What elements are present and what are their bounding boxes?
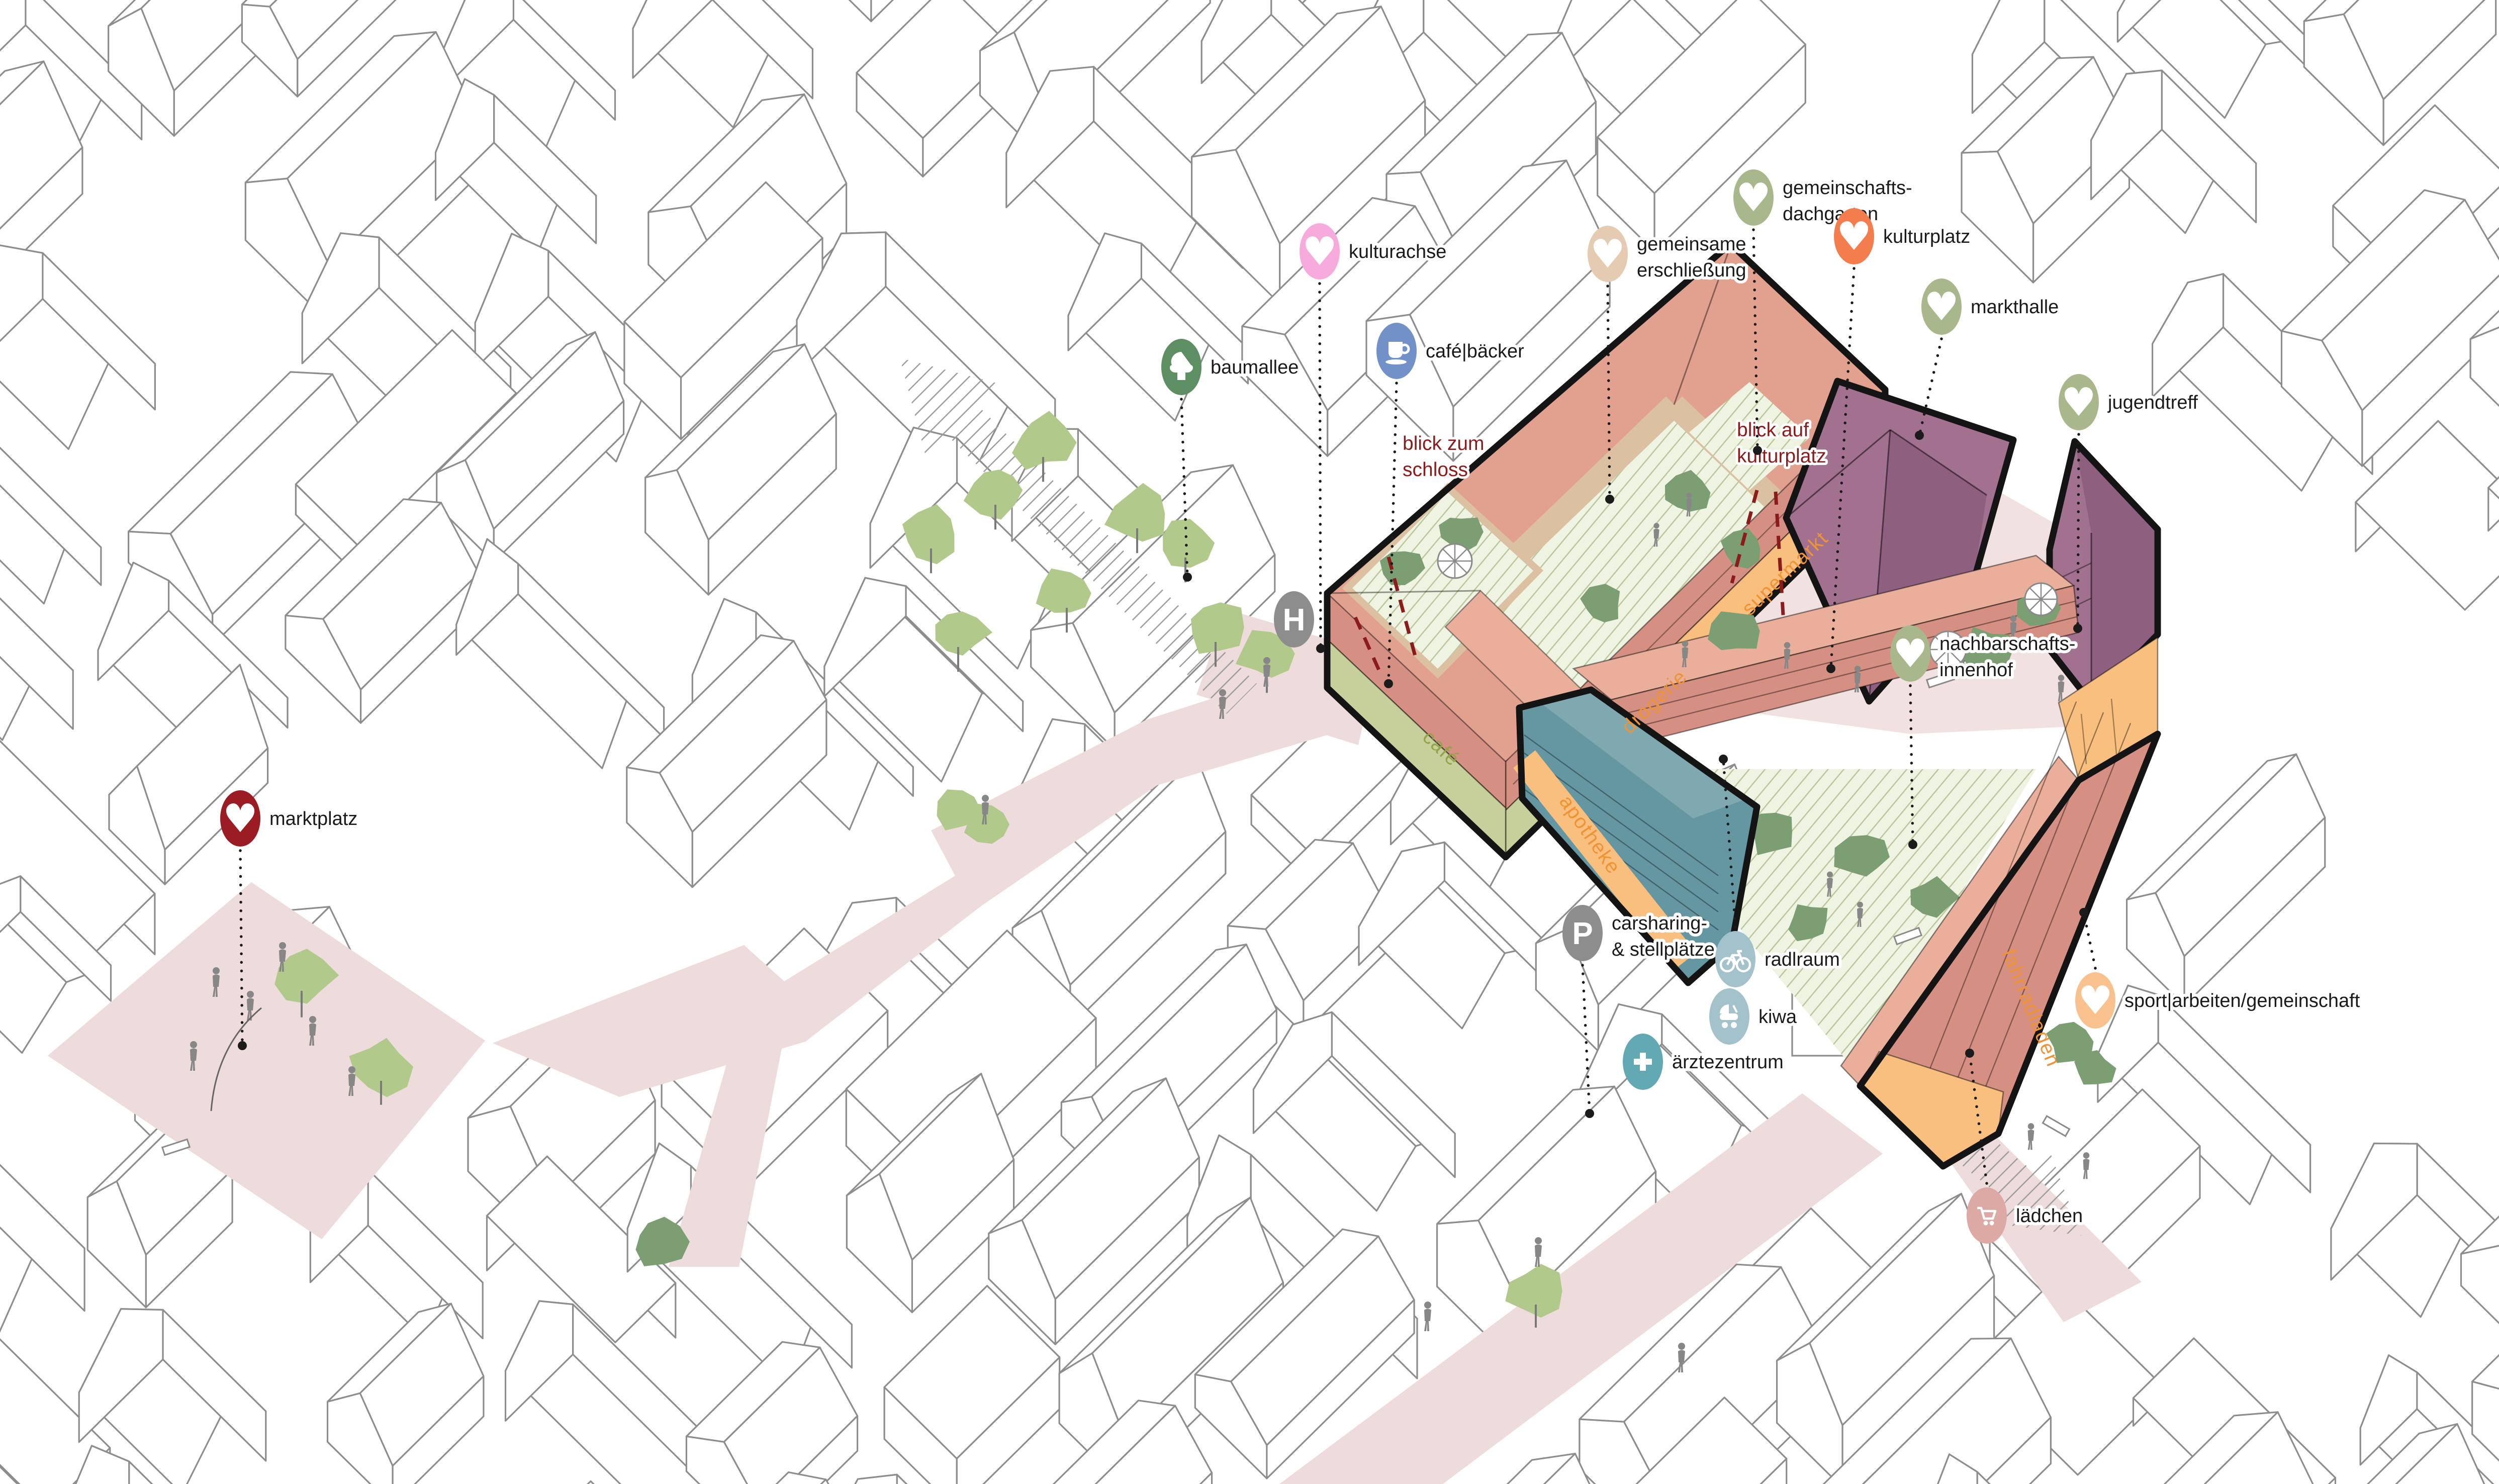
svg-text:♥: ♥ bbox=[1893, 631, 1928, 677]
label-text: gemeinsame bbox=[1637, 234, 1746, 255]
heart-icon-glyph: ♥ bbox=[1924, 285, 1959, 330]
label-text: kulturplatz bbox=[1883, 226, 1970, 247]
heart-icon-glyph: ♥ bbox=[2061, 380, 2096, 425]
bike-icon bbox=[1715, 931, 1755, 987]
label-text: nachbarschafts- bbox=[1939, 633, 2075, 655]
cup-icon-glyph bbox=[1385, 342, 1409, 364]
label-text: baumallee bbox=[1211, 357, 1299, 378]
label-text: ärztezentrum bbox=[1672, 1052, 1784, 1073]
label-text: kulturachse bbox=[1349, 241, 1446, 262]
svg-text:kulturplatz: kulturplatz bbox=[1737, 445, 1826, 467]
heart-icon-glyph: ♥ bbox=[1302, 229, 1337, 274]
leader-dot bbox=[1316, 644, 1325, 653]
heart-icon-glyph: ♥ bbox=[1590, 232, 1625, 277]
leader-dot bbox=[1384, 679, 1393, 688]
svg-text:♥: ♥ bbox=[1836, 214, 1872, 259]
label-text: & stellplätze bbox=[1612, 939, 1715, 960]
svg-text:blick auf: blick auf bbox=[1737, 419, 1809, 441]
site-plan-canvas: supermarktdrogeriecaféapothekefahrradlad… bbox=[0, 0, 2499, 1484]
leader-dot bbox=[2079, 908, 2088, 917]
label-text: gemeinschafts- bbox=[1783, 177, 1912, 199]
leader-dot bbox=[1965, 1049, 1974, 1058]
label-text: lädchen bbox=[2016, 1205, 2083, 1227]
svg-text:schloss: schloss bbox=[1403, 459, 1468, 481]
label-text: radlraum bbox=[1765, 949, 1840, 970]
svg-text:P: P bbox=[1572, 916, 1593, 951]
leader-dot bbox=[1908, 840, 1917, 849]
heart-icon-glyph: ♥ bbox=[1736, 175, 1771, 221]
svg-text:♥: ♥ bbox=[1302, 229, 1337, 274]
letter-icon-glyph: H bbox=[1283, 603, 1306, 637]
heart-icon-glyph: ♥ bbox=[1893, 631, 1928, 677]
leader-dot bbox=[238, 1041, 247, 1050]
svg-text:♥: ♥ bbox=[223, 796, 258, 842]
svg-text:♥: ♥ bbox=[1590, 232, 1625, 277]
svg-text:♥: ♥ bbox=[2078, 978, 2113, 1024]
leader-dot bbox=[1915, 431, 1924, 440]
label-text: café|bäcker bbox=[1426, 341, 1524, 362]
svg-text:♥: ♥ bbox=[1736, 175, 1771, 221]
label-text: markthalle bbox=[1971, 297, 2059, 318]
label-text: carsharing- bbox=[1612, 913, 1707, 934]
heart-icon-glyph: ♥ bbox=[2078, 978, 2113, 1024]
leader-dot bbox=[1826, 664, 1835, 673]
label-text: innenhof bbox=[1939, 660, 2013, 681]
heart-icon-glyph: ♥ bbox=[223, 796, 258, 842]
leader-dot bbox=[2073, 624, 2082, 633]
label-kiwa: kiwa bbox=[1709, 988, 1797, 1045]
svg-text:♥: ♥ bbox=[1924, 285, 1959, 330]
letter-icon-glyph: P bbox=[1572, 916, 1593, 951]
svg-text:blick zum: blick zum bbox=[1403, 433, 1485, 454]
leader-dot bbox=[1719, 755, 1728, 764]
leader-dot bbox=[1183, 573, 1192, 582]
heart-icon-glyph: ♥ bbox=[1836, 214, 1872, 259]
label-text: marktplatz bbox=[269, 808, 357, 829]
leader-dot bbox=[1753, 446, 1762, 455]
leader-dot bbox=[1585, 1109, 1594, 1118]
label-text: jugendtreff bbox=[2107, 392, 2198, 413]
svg-text:♥: ♥ bbox=[2061, 380, 2096, 425]
cart-icon bbox=[1967, 1187, 2007, 1244]
svg-text:H: H bbox=[1283, 603, 1306, 637]
label-text: erschließung bbox=[1637, 260, 1746, 281]
leader-dot bbox=[1605, 495, 1614, 504]
label-text: kiwa bbox=[1758, 1006, 1797, 1028]
urban-design-masterplan: supermarktdrogeriecaféapothekefahrradlad… bbox=[0, 0, 2499, 1484]
label-text: sport|arbeiten/gemeinschaft bbox=[2124, 990, 2360, 1011]
label-haltestelle: H bbox=[1274, 591, 1314, 647]
